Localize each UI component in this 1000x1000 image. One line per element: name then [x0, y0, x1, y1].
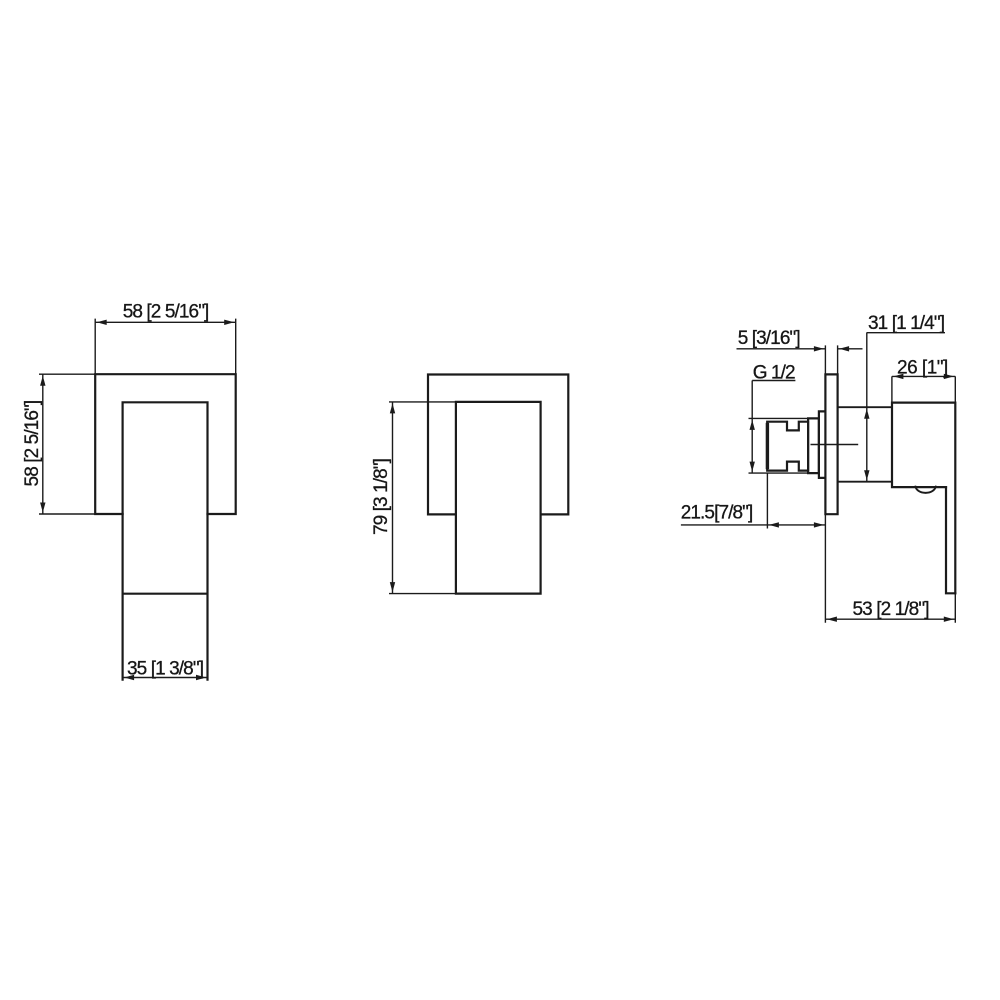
svg-text:58 [2 5/16"]: 58 [2 5/16"]: [22, 401, 43, 487]
svg-text:G 1/2: G 1/2: [753, 362, 795, 383]
svg-text:35 [1 3/8"]: 35 [1 3/8"]: [127, 659, 203, 680]
svg-text:58 [2 5/16"]: 58 [2 5/16"]: [123, 301, 209, 322]
svg-text:79 [3 1/8"]: 79 [3 1/8"]: [371, 459, 392, 535]
svg-text:26 [1"]: 26 [1"]: [897, 358, 948, 379]
svg-text:21.5[7/8"]: 21.5[7/8"]: [681, 503, 753, 524]
svg-text:5 [3/16"]: 5 [3/16"]: [738, 328, 800, 349]
svg-text:31 [1 1/4"]: 31 [1 1/4"]: [868, 313, 944, 334]
svg-text:53 [2 1/8"]: 53 [2 1/8"]: [853, 599, 929, 620]
